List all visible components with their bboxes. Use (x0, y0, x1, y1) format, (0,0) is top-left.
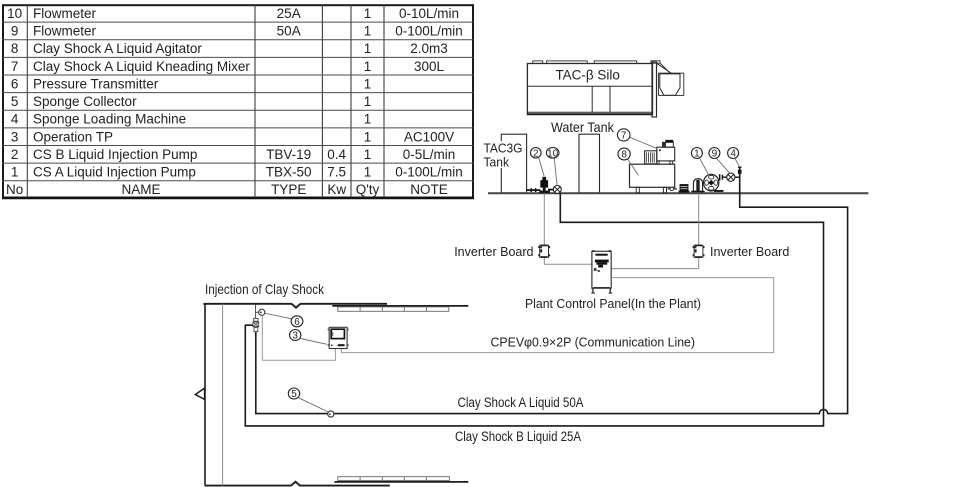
svg-text:Injection of Clay Shock: Injection of Clay Shock (205, 282, 324, 297)
svg-text:Water Tank: Water Tank (551, 120, 614, 135)
svg-text:TYPE: TYPE (271, 182, 306, 197)
svg-text:Pressure Transmitter: Pressure Transmitter (33, 76, 159, 91)
svg-text:10: 10 (7, 6, 22, 21)
svg-text:1: 1 (364, 94, 372, 109)
svg-text:Clay Shock A Liquid Agitator: Clay Shock A Liquid Agitator (33, 41, 202, 56)
svg-text:1: 1 (364, 112, 372, 127)
svg-text:0-5L/min: 0-5L/min (403, 147, 456, 162)
svg-text:Sponge Collector: Sponge Collector (33, 94, 137, 109)
svg-text:Flowmeter: Flowmeter (33, 6, 97, 21)
svg-text:5: 5 (11, 94, 19, 109)
svg-text:TAC3G: TAC3G (484, 140, 523, 155)
svg-text:9: 9 (11, 24, 19, 39)
svg-text:Clay Shock A Liquid 50A: Clay Shock A Liquid 50A (458, 395, 584, 410)
svg-text:0-100L/min: 0-100L/min (395, 24, 463, 39)
svg-text:5: 5 (291, 389, 297, 400)
svg-text:AC100V: AC100V (404, 129, 454, 144)
svg-text:NAME: NAME (121, 182, 160, 197)
svg-text:1: 1 (11, 165, 19, 180)
svg-text:1: 1 (364, 41, 372, 56)
svg-text:Q'ty: Q'ty (356, 182, 380, 197)
svg-text:Flowmeter: Flowmeter (33, 24, 97, 39)
svg-text:2.0m3: 2.0m3 (410, 41, 448, 56)
svg-text:TBX-50: TBX-50 (266, 165, 312, 180)
svg-text:Clay Shock A Liquid Kneading M: Clay Shock A Liquid Kneading Mixer (33, 59, 250, 74)
svg-text:10: 10 (547, 148, 559, 159)
svg-text:2: 2 (11, 147, 19, 162)
svg-text:TAC-β Silo: TAC-β Silo (555, 67, 620, 83)
svg-text:CPEVφ0.9×2P (Communication Lin: CPEVφ0.9×2P (Communication Line) (491, 335, 696, 350)
svg-text:50A: 50A (277, 24, 301, 39)
svg-text:CS B Liquid Injection Pump: CS B Liquid Injection Pump (33, 147, 197, 162)
svg-text:3: 3 (292, 331, 298, 342)
svg-text:Inverter Board: Inverter Board (454, 244, 533, 259)
svg-text:0-10L/min: 0-10L/min (399, 6, 459, 21)
svg-text:Kw: Kw (327, 182, 346, 197)
svg-text:4: 4 (11, 112, 19, 127)
svg-text:9: 9 (712, 149, 718, 160)
svg-text:1: 1 (364, 129, 372, 144)
svg-text:25A: 25A (277, 6, 301, 21)
svg-text:8: 8 (621, 150, 627, 161)
svg-text:300L: 300L (414, 59, 445, 74)
svg-text:Clay Shock B Liquid 25A: Clay Shock B Liquid 25A (455, 429, 581, 444)
svg-text:No: No (6, 182, 23, 197)
svg-text:CS A Liquid Injection Pump: CS A Liquid Injection Pump (33, 165, 196, 180)
svg-text:Inverter Board: Inverter Board (710, 244, 789, 259)
svg-text:7.5: 7.5 (327, 165, 346, 180)
svg-text:NOTE: NOTE (410, 182, 448, 197)
svg-text:1: 1 (694, 149, 700, 160)
svg-text:1: 1 (364, 76, 372, 91)
svg-text:Tank: Tank (484, 155, 510, 170)
svg-text:1: 1 (364, 165, 372, 180)
svg-text:Sponge Loading Machine: Sponge Loading Machine (33, 112, 186, 127)
svg-text:0.4: 0.4 (327, 147, 346, 162)
svg-text:1: 1 (364, 24, 372, 39)
svg-text:3: 3 (11, 129, 19, 144)
svg-text:1: 1 (364, 6, 372, 21)
svg-text:6: 6 (11, 76, 19, 91)
svg-text:7: 7 (621, 131, 627, 142)
svg-text:1: 1 (364, 59, 372, 74)
svg-text:TBV-19: TBV-19 (266, 147, 311, 162)
svg-text:Plant Control Panel(In the Pla: Plant Control Panel(In the Plant) (525, 296, 701, 311)
svg-text:Operation TP: Operation TP (33, 129, 113, 144)
svg-text:0-100L/min: 0-100L/min (395, 165, 463, 180)
svg-text:4: 4 (730, 149, 736, 160)
svg-text:2: 2 (533, 148, 539, 159)
svg-text:8: 8 (11, 41, 19, 56)
svg-text:7: 7 (11, 59, 19, 74)
svg-text:1: 1 (364, 147, 372, 162)
svg-text:6: 6 (294, 317, 300, 328)
